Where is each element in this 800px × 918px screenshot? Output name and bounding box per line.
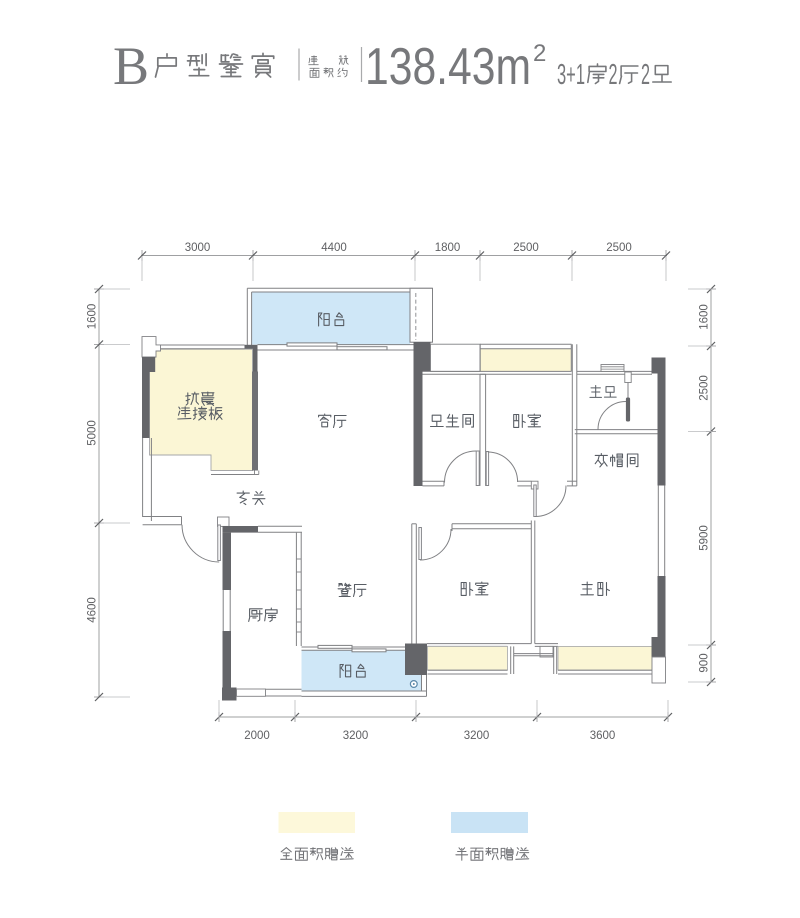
svg-text:138.43m: 138.43m: [365, 38, 531, 96]
svg-text:3200: 3200: [343, 730, 369, 742]
svg-text:2500: 2500: [606, 242, 632, 254]
svg-text:4400: 4400: [321, 242, 347, 254]
svg-text:2000: 2000: [244, 730, 270, 742]
svg-text:2: 2: [533, 40, 546, 67]
svg-text:900: 900: [699, 653, 711, 672]
svg-text:4600: 4600: [87, 597, 99, 623]
svg-text:3200: 3200: [464, 730, 490, 742]
svg-text:3600: 3600: [590, 730, 616, 742]
svg-text:3+1: 3+1: [557, 59, 585, 91]
svg-text:2: 2: [641, 59, 650, 91]
svg-text:2500: 2500: [699, 375, 711, 401]
svg-text:5900: 5900: [699, 525, 711, 551]
svg-text:2500: 2500: [513, 242, 539, 254]
svg-text:3000: 3000: [185, 242, 211, 254]
svg-text:2: 2: [609, 59, 618, 91]
svg-text:1600: 1600: [87, 304, 99, 330]
svg-text:5000: 5000: [87, 420, 99, 446]
svg-text:B: B: [113, 36, 149, 96]
svg-text:1800: 1800: [435, 242, 461, 254]
svg-text:1600: 1600: [699, 304, 711, 330]
